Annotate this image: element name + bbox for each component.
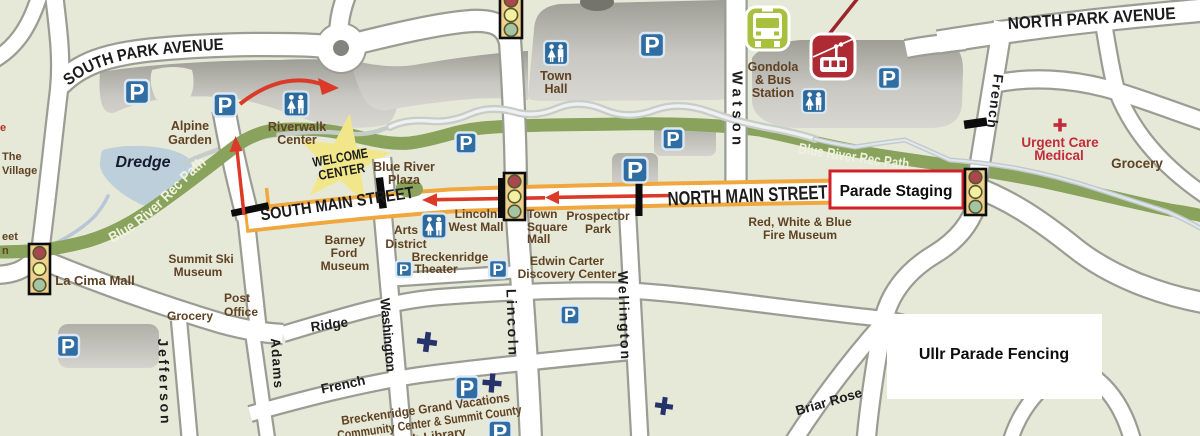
svg-text:Discovery Center: Discovery Center: [518, 267, 617, 281]
svg-text:P: P: [399, 261, 409, 278]
svg-text:La Cima Mall: La Cima Mall: [55, 273, 134, 288]
svg-text:eet: eet: [2, 231, 18, 243]
svg-text:Hall: Hall: [545, 82, 568, 96]
svg-text:Grocery: Grocery: [167, 309, 213, 323]
svg-text:Jefferson: Jefferson: [155, 338, 174, 424]
svg-text:Edwin Carter: Edwin Carter: [530, 254, 604, 268]
svg-text:P: P: [493, 420, 508, 436]
svg-text:Town: Town: [527, 207, 557, 221]
svg-text:Dredge: Dredge: [115, 154, 170, 171]
svg-text:Parade Staging: Parade Staging: [840, 183, 953, 200]
svg-text:West Mall: West Mall: [448, 220, 503, 234]
svg-text:Medical: Medical: [1034, 148, 1084, 163]
svg-text:Town: Town: [540, 69, 572, 83]
svg-text:Lincoln: Lincoln: [455, 207, 498, 221]
svg-text:Center: Center: [277, 133, 317, 147]
svg-text:Prospector: Prospector: [566, 209, 630, 223]
svg-text:Ford: Ford: [331, 246, 358, 260]
svg-text:P: P: [129, 79, 144, 105]
svg-text:Barney: Barney: [325, 233, 366, 247]
svg-text:Museum: Museum: [321, 259, 370, 273]
svg-text:Summit Ski: Summit Ski: [168, 252, 233, 266]
svg-text:P: P: [218, 93, 233, 118]
svg-text:The: The: [2, 151, 22, 163]
svg-text:P: P: [666, 129, 679, 151]
svg-text:Station: Station: [752, 86, 794, 100]
svg-text:Gondola: Gondola: [748, 60, 800, 74]
svg-text:P: P: [459, 133, 472, 155]
svg-text:P: P: [644, 32, 659, 58]
svg-text:P: P: [627, 158, 643, 185]
svg-text:Ullr Parade Fencing: Ullr Parade Fencing: [919, 346, 1069, 363]
svg-text:District: District: [385, 237, 426, 251]
svg-text:Mall: Mall: [527, 232, 550, 246]
svg-text:Red, White & Blue: Red, White & Blue: [748, 215, 852, 229]
svg-text:n: n: [2, 245, 9, 257]
svg-text:Alpine: Alpine: [171, 119, 209, 133]
svg-text:P: P: [882, 68, 896, 91]
svg-text:Office: Office: [224, 305, 258, 319]
svg-text:Arts: Arts: [394, 223, 418, 237]
svg-text:Riverwalk: Riverwalk: [268, 120, 326, 134]
svg-text:Garden: Garden: [168, 133, 212, 147]
svg-text:Blue River: Blue River: [373, 160, 435, 174]
svg-text:P: P: [492, 260, 503, 279]
svg-text:Museum: Museum: [174, 265, 223, 279]
svg-text:P: P: [564, 306, 576, 326]
svg-text:P: P: [61, 336, 75, 359]
svg-text:Fire Museum: Fire Museum: [763, 228, 837, 242]
svg-text:Park: Park: [585, 222, 611, 236]
svg-text:& Bus: & Bus: [755, 73, 791, 87]
svg-text:Theater: Theater: [414, 262, 458, 276]
svg-text:e: e: [0, 122, 6, 134]
svg-text:Plaza: Plaza: [388, 173, 421, 187]
svg-text:Village: Village: [2, 165, 37, 177]
svg-text:Grocery: Grocery: [1111, 156, 1163, 171]
svg-text:Post: Post: [224, 291, 250, 305]
